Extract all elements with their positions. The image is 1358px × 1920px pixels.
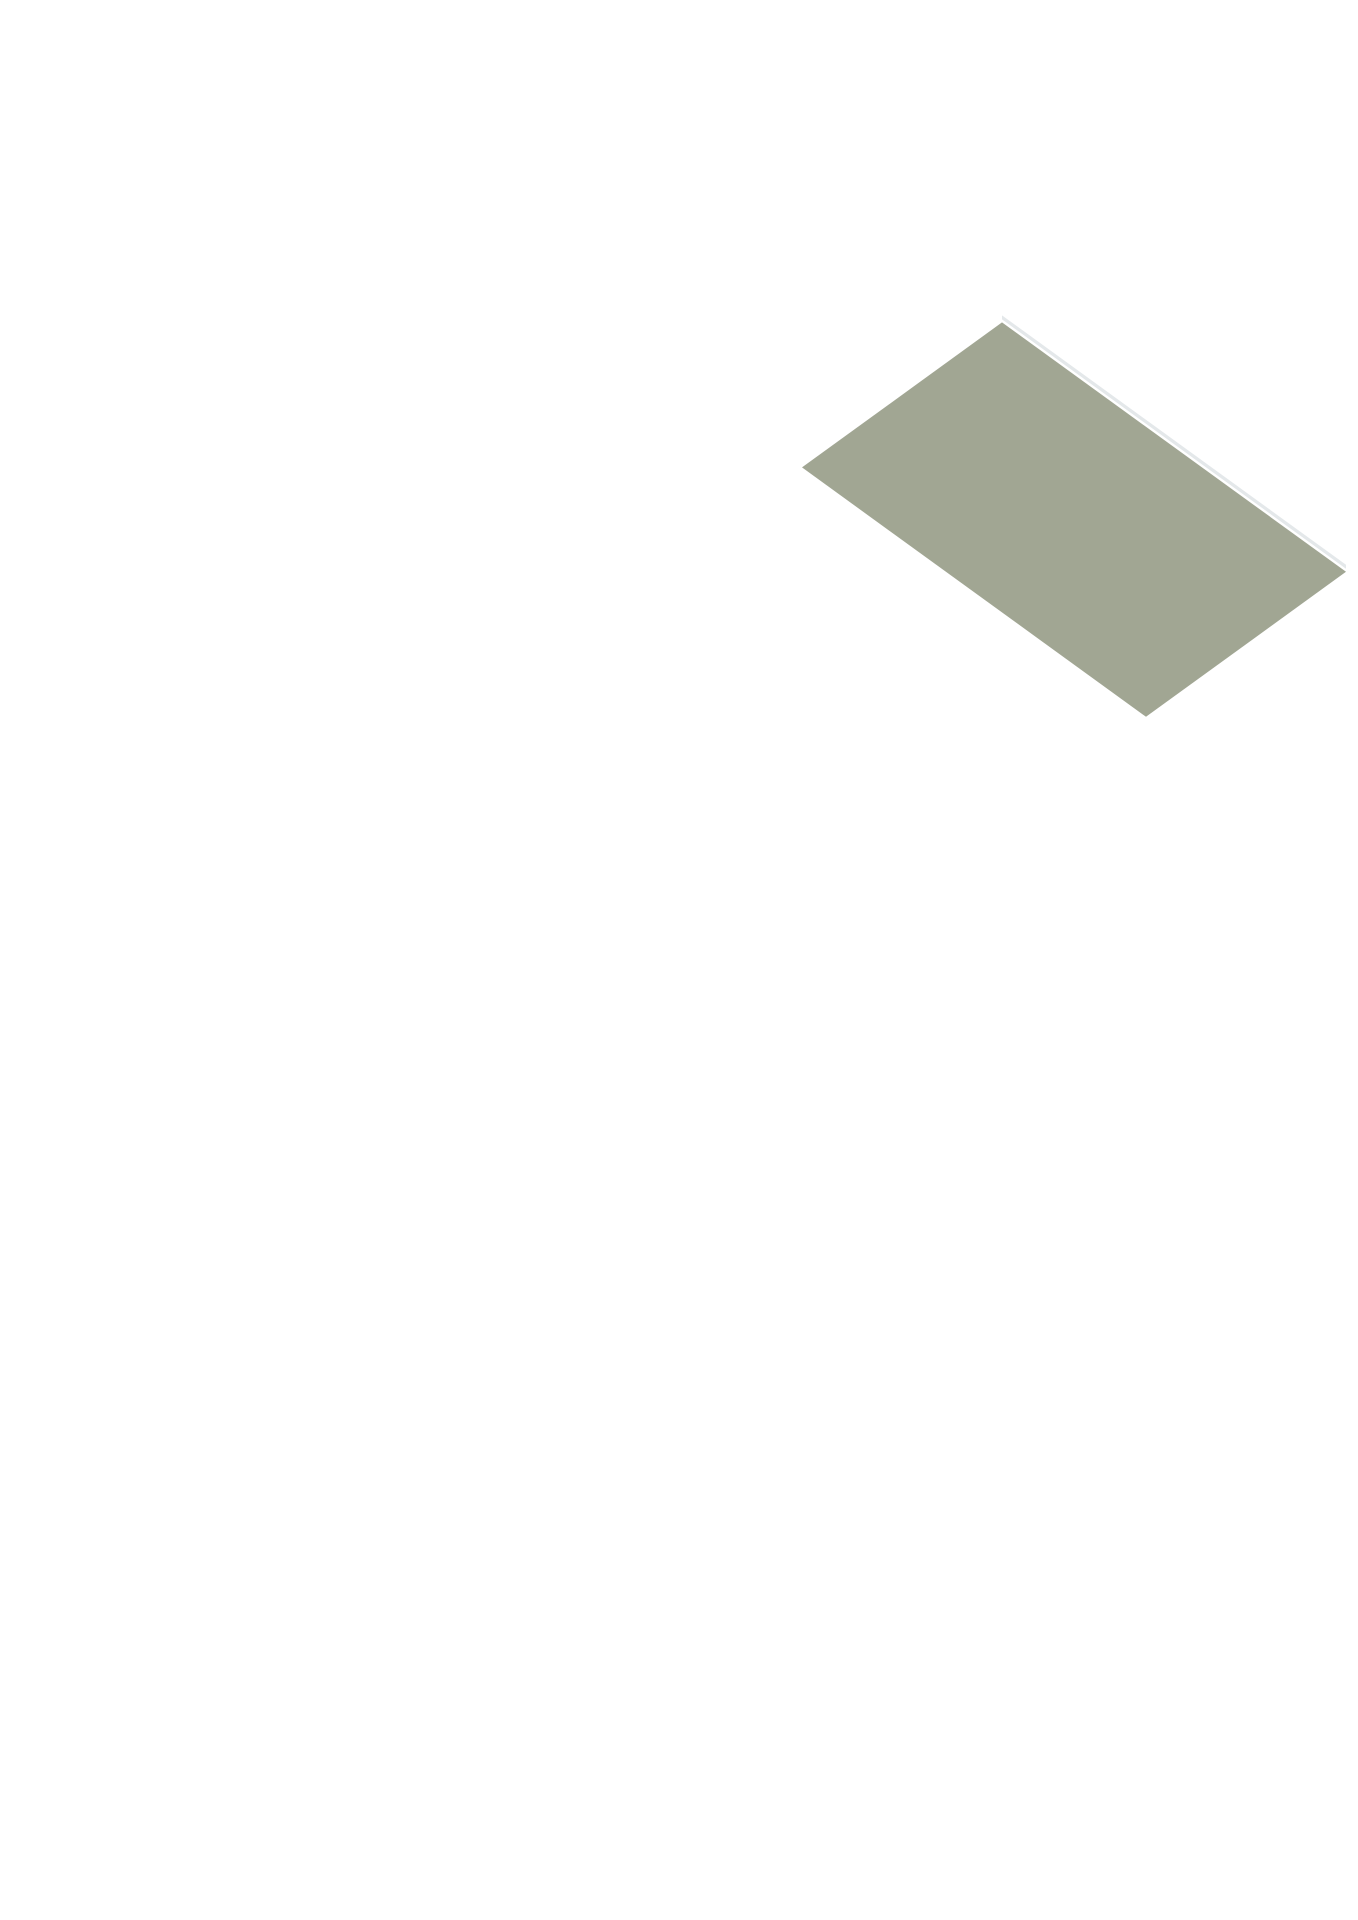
page — [0, 0, 1358, 1920]
terrace-floor — [802, 322, 1346, 716]
floorplan-3d — [0, 0, 1358, 1920]
terrace-floor — [802, 322, 1346, 716]
